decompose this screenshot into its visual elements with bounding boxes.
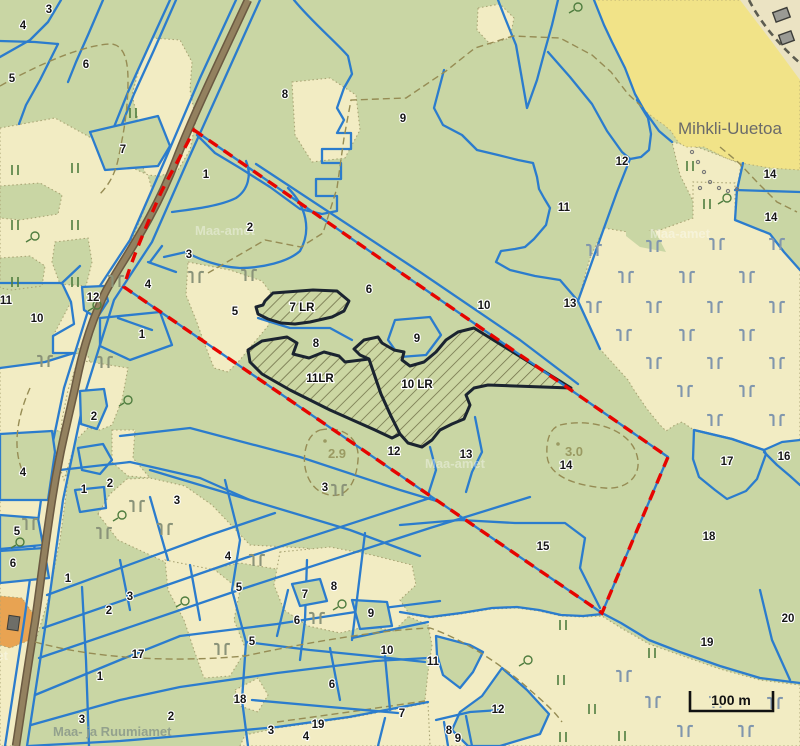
svg-text:7: 7 [120, 144, 126, 156]
svg-text:17: 17 [721, 456, 734, 468]
svg-text:3: 3 [174, 495, 180, 507]
svg-text:1: 1 [203, 169, 210, 181]
svg-text:14: 14 [764, 169, 777, 181]
svg-text:Maa-amet: Maa-amet [0, 648, 9, 663]
svg-text:12: 12 [388, 446, 401, 458]
svg-text:5: 5 [249, 636, 256, 648]
svg-text:16: 16 [778, 451, 791, 463]
svg-text:11: 11 [0, 295, 13, 307]
svg-text:10 LR: 10 LR [401, 379, 433, 391]
svg-text:17: 17 [132, 649, 145, 661]
svg-text:9: 9 [414, 333, 420, 345]
svg-text:15: 15 [537, 541, 550, 553]
svg-text:12: 12 [616, 156, 629, 168]
svg-text:4: 4 [20, 467, 27, 479]
svg-text:4: 4 [225, 551, 232, 563]
svg-text:18: 18 [234, 694, 247, 706]
svg-text:6: 6 [329, 679, 335, 691]
svg-text:6: 6 [366, 284, 372, 296]
svg-text:11: 11 [558, 202, 571, 214]
svg-text:4: 4 [303, 731, 310, 743]
svg-text:2: 2 [107, 478, 113, 490]
svg-text:Maa- ja Ruumiamet: Maa- ja Ruumiamet [53, 724, 172, 739]
svg-text:10: 10 [31, 313, 44, 325]
svg-text:19: 19 [701, 637, 714, 649]
svg-text:2: 2 [247, 222, 253, 234]
svg-text:6: 6 [294, 615, 300, 627]
svg-text:13: 13 [460, 449, 473, 461]
svg-text:5: 5 [232, 306, 239, 318]
svg-text:3: 3 [186, 249, 192, 261]
svg-text:2.9: 2.9 [328, 446, 346, 461]
svg-text:2: 2 [106, 605, 112, 617]
svg-text:12: 12 [87, 292, 100, 304]
svg-text:14: 14 [765, 212, 778, 224]
svg-text:3: 3 [322, 482, 328, 494]
svg-text:9: 9 [455, 733, 461, 745]
svg-text:100 m: 100 m [711, 692, 751, 708]
svg-text:6: 6 [83, 59, 89, 71]
svg-text:9: 9 [368, 608, 374, 620]
svg-text:10: 10 [478, 300, 491, 312]
svg-text:13: 13 [564, 298, 577, 310]
svg-text:6: 6 [10, 558, 16, 570]
svg-text:3: 3 [127, 591, 133, 603]
svg-text:7 LR: 7 LR [290, 302, 316, 314]
svg-text:3: 3 [46, 4, 52, 16]
svg-text:10: 10 [381, 645, 394, 657]
svg-text:5: 5 [236, 582, 243, 594]
svg-text:8: 8 [313, 338, 320, 350]
svg-text:12: 12 [492, 704, 505, 716]
svg-text:9: 9 [400, 113, 406, 125]
svg-text:3.0: 3.0 [565, 444, 583, 459]
svg-text:18: 18 [703, 531, 716, 543]
svg-text:7: 7 [399, 708, 405, 720]
svg-text:Mihkli-Uuetoa: Mihkli-Uuetoa [678, 119, 782, 138]
svg-text:11LR: 11LR [306, 373, 334, 385]
svg-text:11: 11 [427, 656, 440, 668]
svg-text:8: 8 [331, 581, 338, 593]
svg-text:5: 5 [9, 73, 16, 85]
svg-text:Maa-amet: Maa-amet [425, 456, 486, 471]
svg-text:4: 4 [145, 279, 152, 291]
svg-text:4: 4 [20, 20, 27, 32]
svg-text:3: 3 [268, 725, 274, 737]
svg-text:8: 8 [282, 89, 289, 101]
svg-text:7: 7 [302, 589, 308, 601]
svg-text:1: 1 [97, 671, 104, 683]
svg-text:19: 19 [312, 719, 325, 731]
svg-text:1: 1 [139, 329, 146, 341]
svg-text:3: 3 [79, 714, 85, 726]
svg-text:8: 8 [446, 725, 453, 737]
svg-text:Maa-amet: Maa-amet [650, 226, 711, 241]
svg-text:2: 2 [91, 411, 97, 423]
svg-text:1: 1 [81, 484, 88, 496]
svg-text:5: 5 [14, 526, 21, 538]
svg-text:20: 20 [782, 613, 795, 625]
svg-text:2: 2 [168, 711, 174, 723]
svg-text:1: 1 [65, 573, 72, 585]
svg-text:14: 14 [560, 460, 573, 472]
